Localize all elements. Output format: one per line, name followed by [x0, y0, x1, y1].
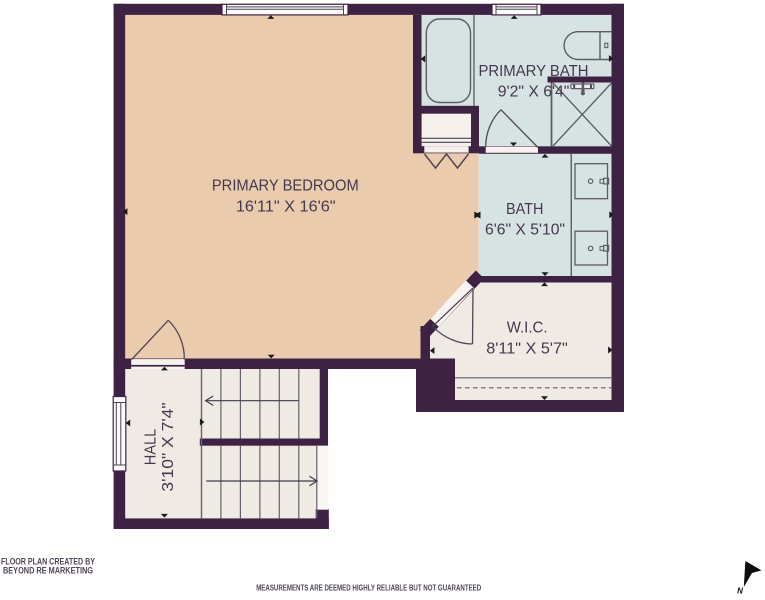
svg-text:3'10" X 7'4": 3'10" X 7'4" [160, 402, 177, 491]
svg-text:W.I.C.: W.I.C. [507, 320, 548, 337]
svg-text:PRIMARY BATH: PRIMARY BATH [479, 63, 589, 80]
svg-text:9'2" X 6'4": 9'2" X 6'4" [498, 84, 570, 101]
svg-text:BATH: BATH [506, 201, 543, 218]
svg-text:8'11" X 5'7": 8'11" X 5'7" [486, 340, 568, 357]
svg-text:N: N [737, 587, 743, 596]
svg-text:HALL: HALL [143, 429, 160, 465]
svg-text:MEASUREMENTS ARE DEEMED HIGHLY: MEASUREMENTS ARE DEEMED HIGHLY RELIABLE … [256, 584, 481, 593]
svg-text:PRIMARY BEDROOM: PRIMARY BEDROOM [212, 178, 359, 195]
svg-text:16'11" X 16'6": 16'11" X 16'6" [236, 199, 336, 216]
svg-text:BEYOND RE MARKETING: BEYOND RE MARKETING [3, 566, 93, 576]
svg-text:6'6" X 5'10": 6'6" X 5'10" [485, 221, 565, 238]
